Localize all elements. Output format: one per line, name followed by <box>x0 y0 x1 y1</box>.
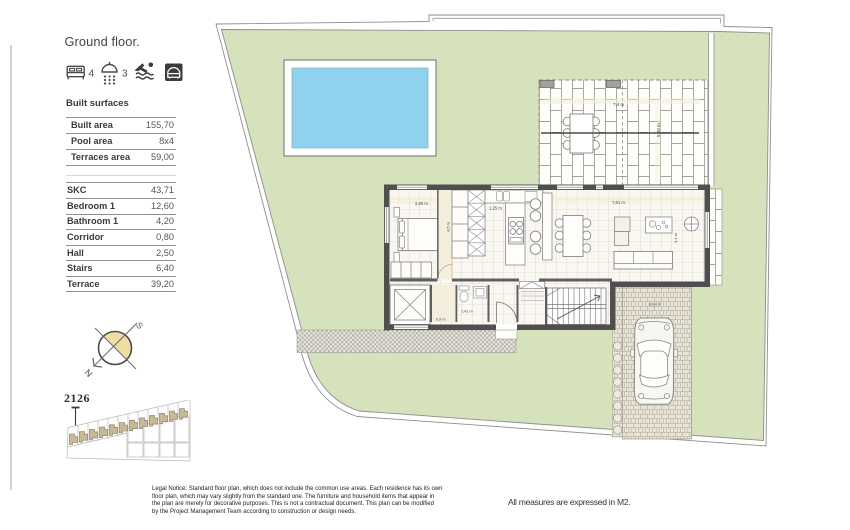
svg-text:3,1 m: 3,1 m <box>673 232 678 243</box>
svg-text:8,34 m: 8,34 m <box>649 302 662 307</box>
svg-text:4,5 m: 4,5 m <box>446 221 451 232</box>
svg-text:2,80 m: 2,80 m <box>415 201 428 206</box>
svg-text:5,60 m: 5,60 m <box>656 123 661 137</box>
svg-text:0,9 m: 0,9 m <box>436 318 446 322</box>
svg-text:1,41 m: 1,41 m <box>461 310 473 314</box>
svg-text:1,25 m: 1,25 m <box>489 206 502 211</box>
svg-text:7,4 m: 7,4 m <box>613 102 625 107</box>
svg-text:7,81 m: 7,81 m <box>612 200 625 205</box>
